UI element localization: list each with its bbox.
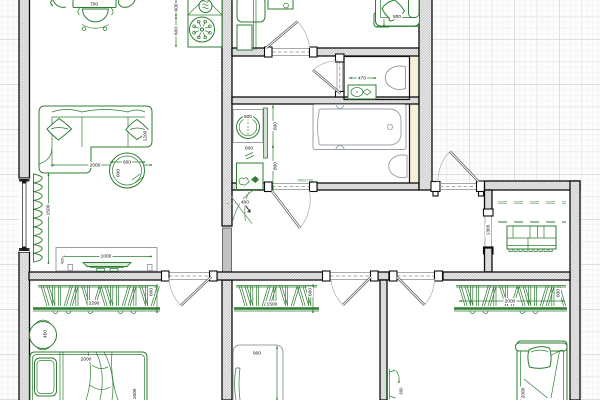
svg-text:600: 600: [245, 146, 253, 152]
svg-text:600: 600: [308, 288, 314, 296]
svg-text:1500: 1500: [267, 302, 278, 308]
svg-text:2000: 2000: [505, 299, 516, 305]
svg-text:420: 420: [59, 257, 64, 264]
svg-text:1000: 1000: [101, 254, 112, 260]
svg-text:800: 800: [273, 162, 279, 170]
svg-text:600: 600: [399, 387, 404, 395]
svg-text:600: 600: [174, 27, 180, 35]
svg-text:2290: 2290: [89, 301, 100, 307]
svg-text:470: 470: [358, 76, 366, 82]
svg-text:600: 600: [174, 3, 180, 11]
svg-text:400: 400: [241, 200, 249, 206]
svg-text:600: 600: [123, 160, 131, 166]
svg-text:700: 700: [90, 2, 98, 8]
svg-text:2000: 2000: [521, 387, 527, 398]
svg-text:1500: 1500: [46, 204, 52, 215]
svg-text:1365: 1365: [486, 224, 492, 235]
svg-text:2000: 2000: [90, 163, 101, 169]
svg-text:700x1700: 700x1700: [297, 179, 313, 183]
svg-text:1600: 1600: [132, 388, 138, 399]
svg-text:450: 450: [43, 330, 49, 338]
svg-text:900: 900: [253, 351, 261, 357]
svg-text:600: 600: [149, 288, 155, 296]
svg-text:1200: 1200: [143, 130, 149, 141]
svg-text:600: 600: [556, 289, 562, 297]
svg-text:600: 600: [244, 114, 252, 120]
svg-text:600: 600: [116, 169, 122, 177]
svg-text:600: 600: [273, 122, 279, 130]
svg-text:800: 800: [393, 14, 401, 20]
svg-text:2000: 2000: [81, 357, 92, 363]
